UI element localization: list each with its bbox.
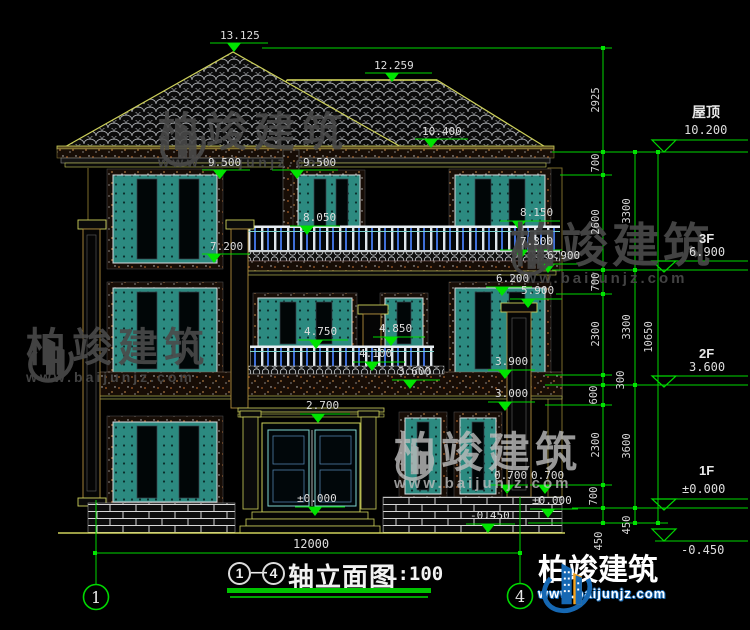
f2-window-left <box>107 282 223 379</box>
brick-base-left <box>88 503 235 533</box>
axis-number-1: 1 <box>91 588 101 607</box>
entrance-door <box>262 423 360 512</box>
f2-window-center <box>253 293 357 353</box>
f3-balcony-railing <box>238 226 560 253</box>
f2-floor-band <box>88 372 562 399</box>
title-axis-start: 1 <box>228 562 251 585</box>
axis-number-4: 4 <box>515 587 525 606</box>
entrance-steps <box>240 512 380 533</box>
f2-window-narrow <box>380 293 428 353</box>
baijun-logo-icon <box>538 554 596 620</box>
brick-base-right <box>383 497 562 533</box>
f1-windows-right <box>399 412 502 498</box>
left-column <box>78 220 106 506</box>
brand-logo: 柏竣建筑 www.baijunjz.com <box>538 554 666 600</box>
eave-cornice <box>57 146 554 167</box>
title-axis-end: 4 <box>262 562 285 585</box>
elevation-linework <box>0 0 750 630</box>
title-underline-thick <box>227 588 431 593</box>
level-triangles <box>652 140 676 541</box>
title-underline-thin <box>230 596 428 598</box>
f2-window-right <box>449 282 551 379</box>
cad-elevation-drawing: 柏竣建筑 www.baijunjz.com 柏竣建筑 www.baijunjz.… <box>0 0 750 630</box>
f2-balcony-railing <box>248 346 444 375</box>
f1-window-left <box>107 416 223 506</box>
title-scale: 1:100 <box>386 563 443 585</box>
f3-floor-band <box>238 252 560 275</box>
